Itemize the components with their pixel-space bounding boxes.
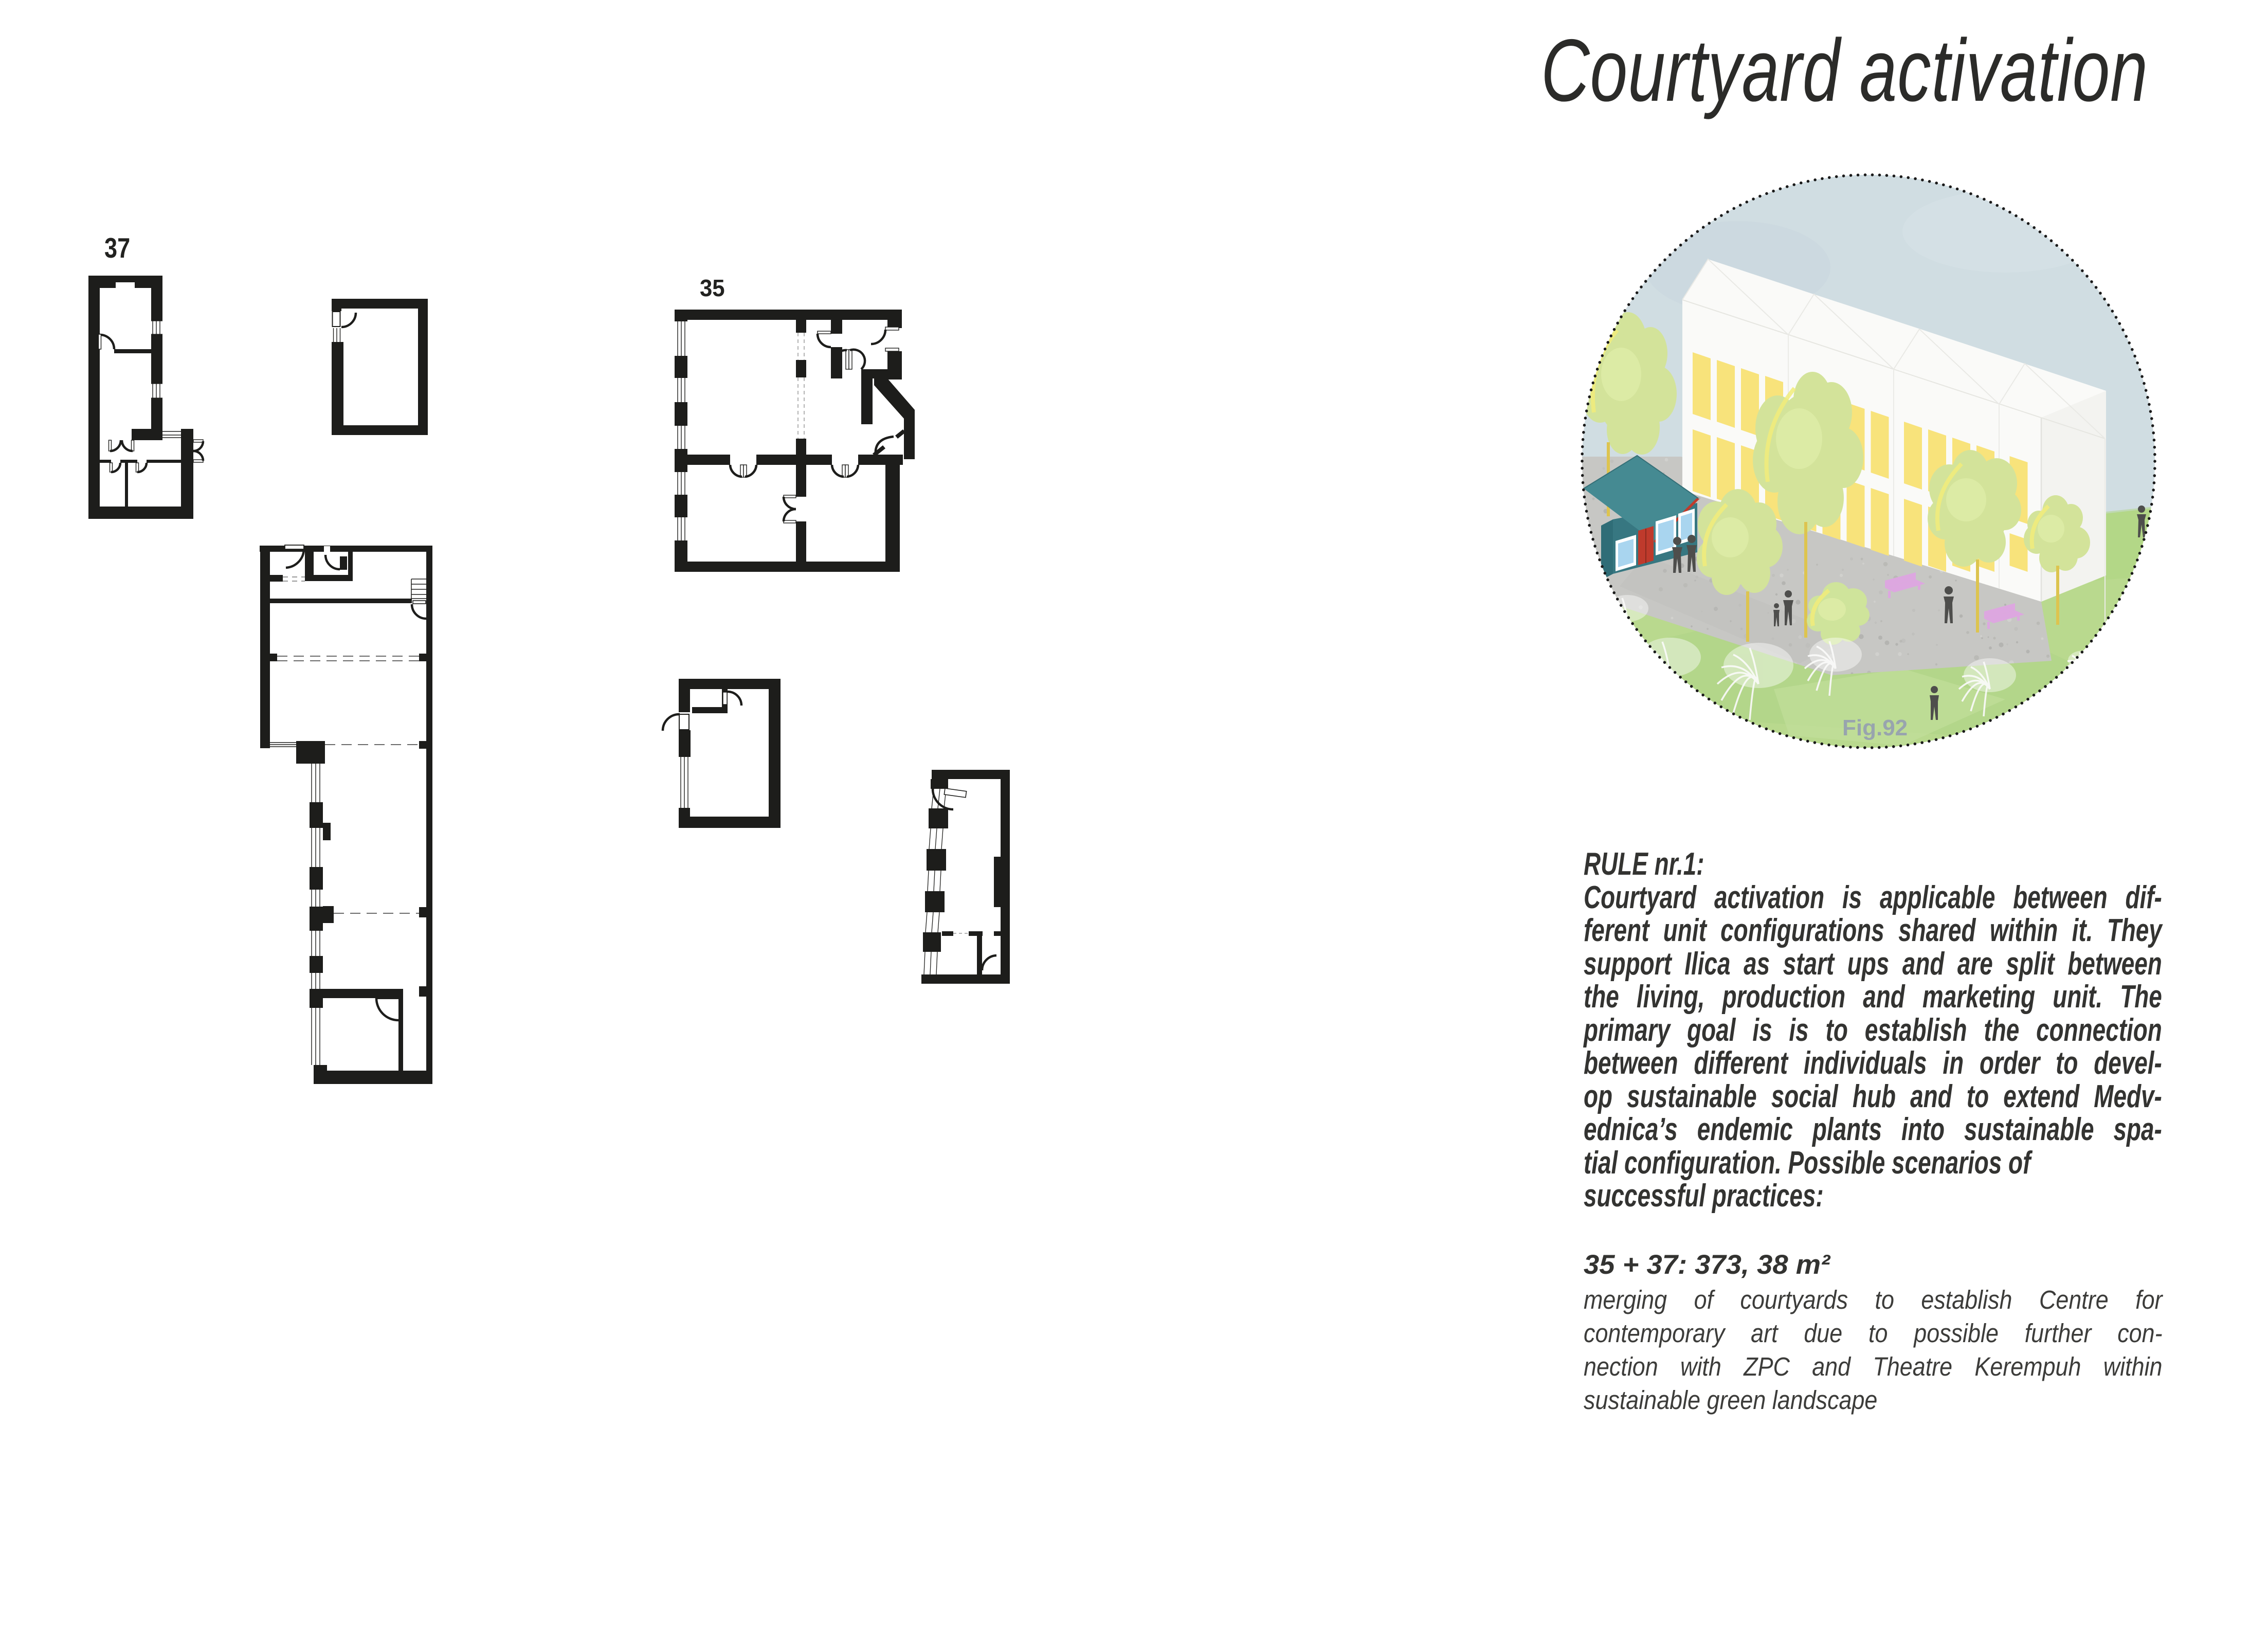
svg-text:Fig.92: Fig.92 xyxy=(1842,715,1908,740)
